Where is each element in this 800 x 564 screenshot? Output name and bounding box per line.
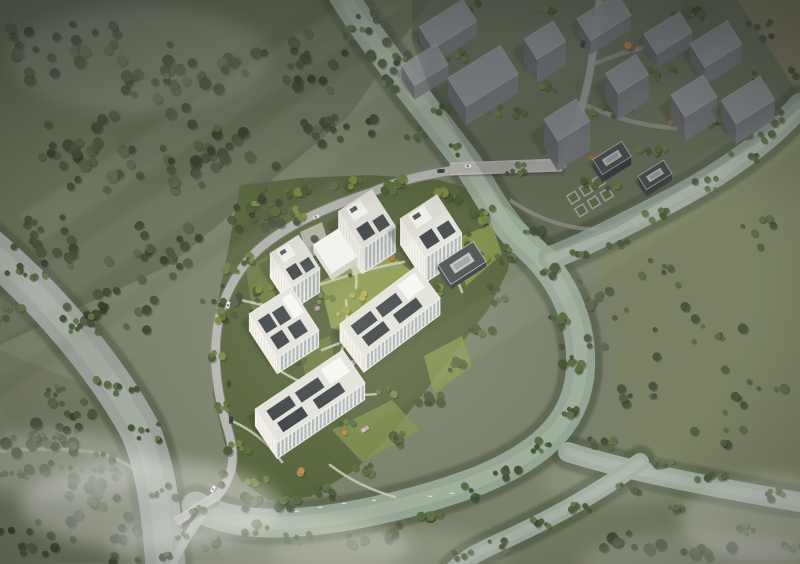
vignette: [0, 0, 800, 564]
atmosphere: [0, 0, 800, 564]
aerial-render-viewport: [0, 0, 800, 564]
masterplan-aerial-rendering: [0, 0, 800, 564]
